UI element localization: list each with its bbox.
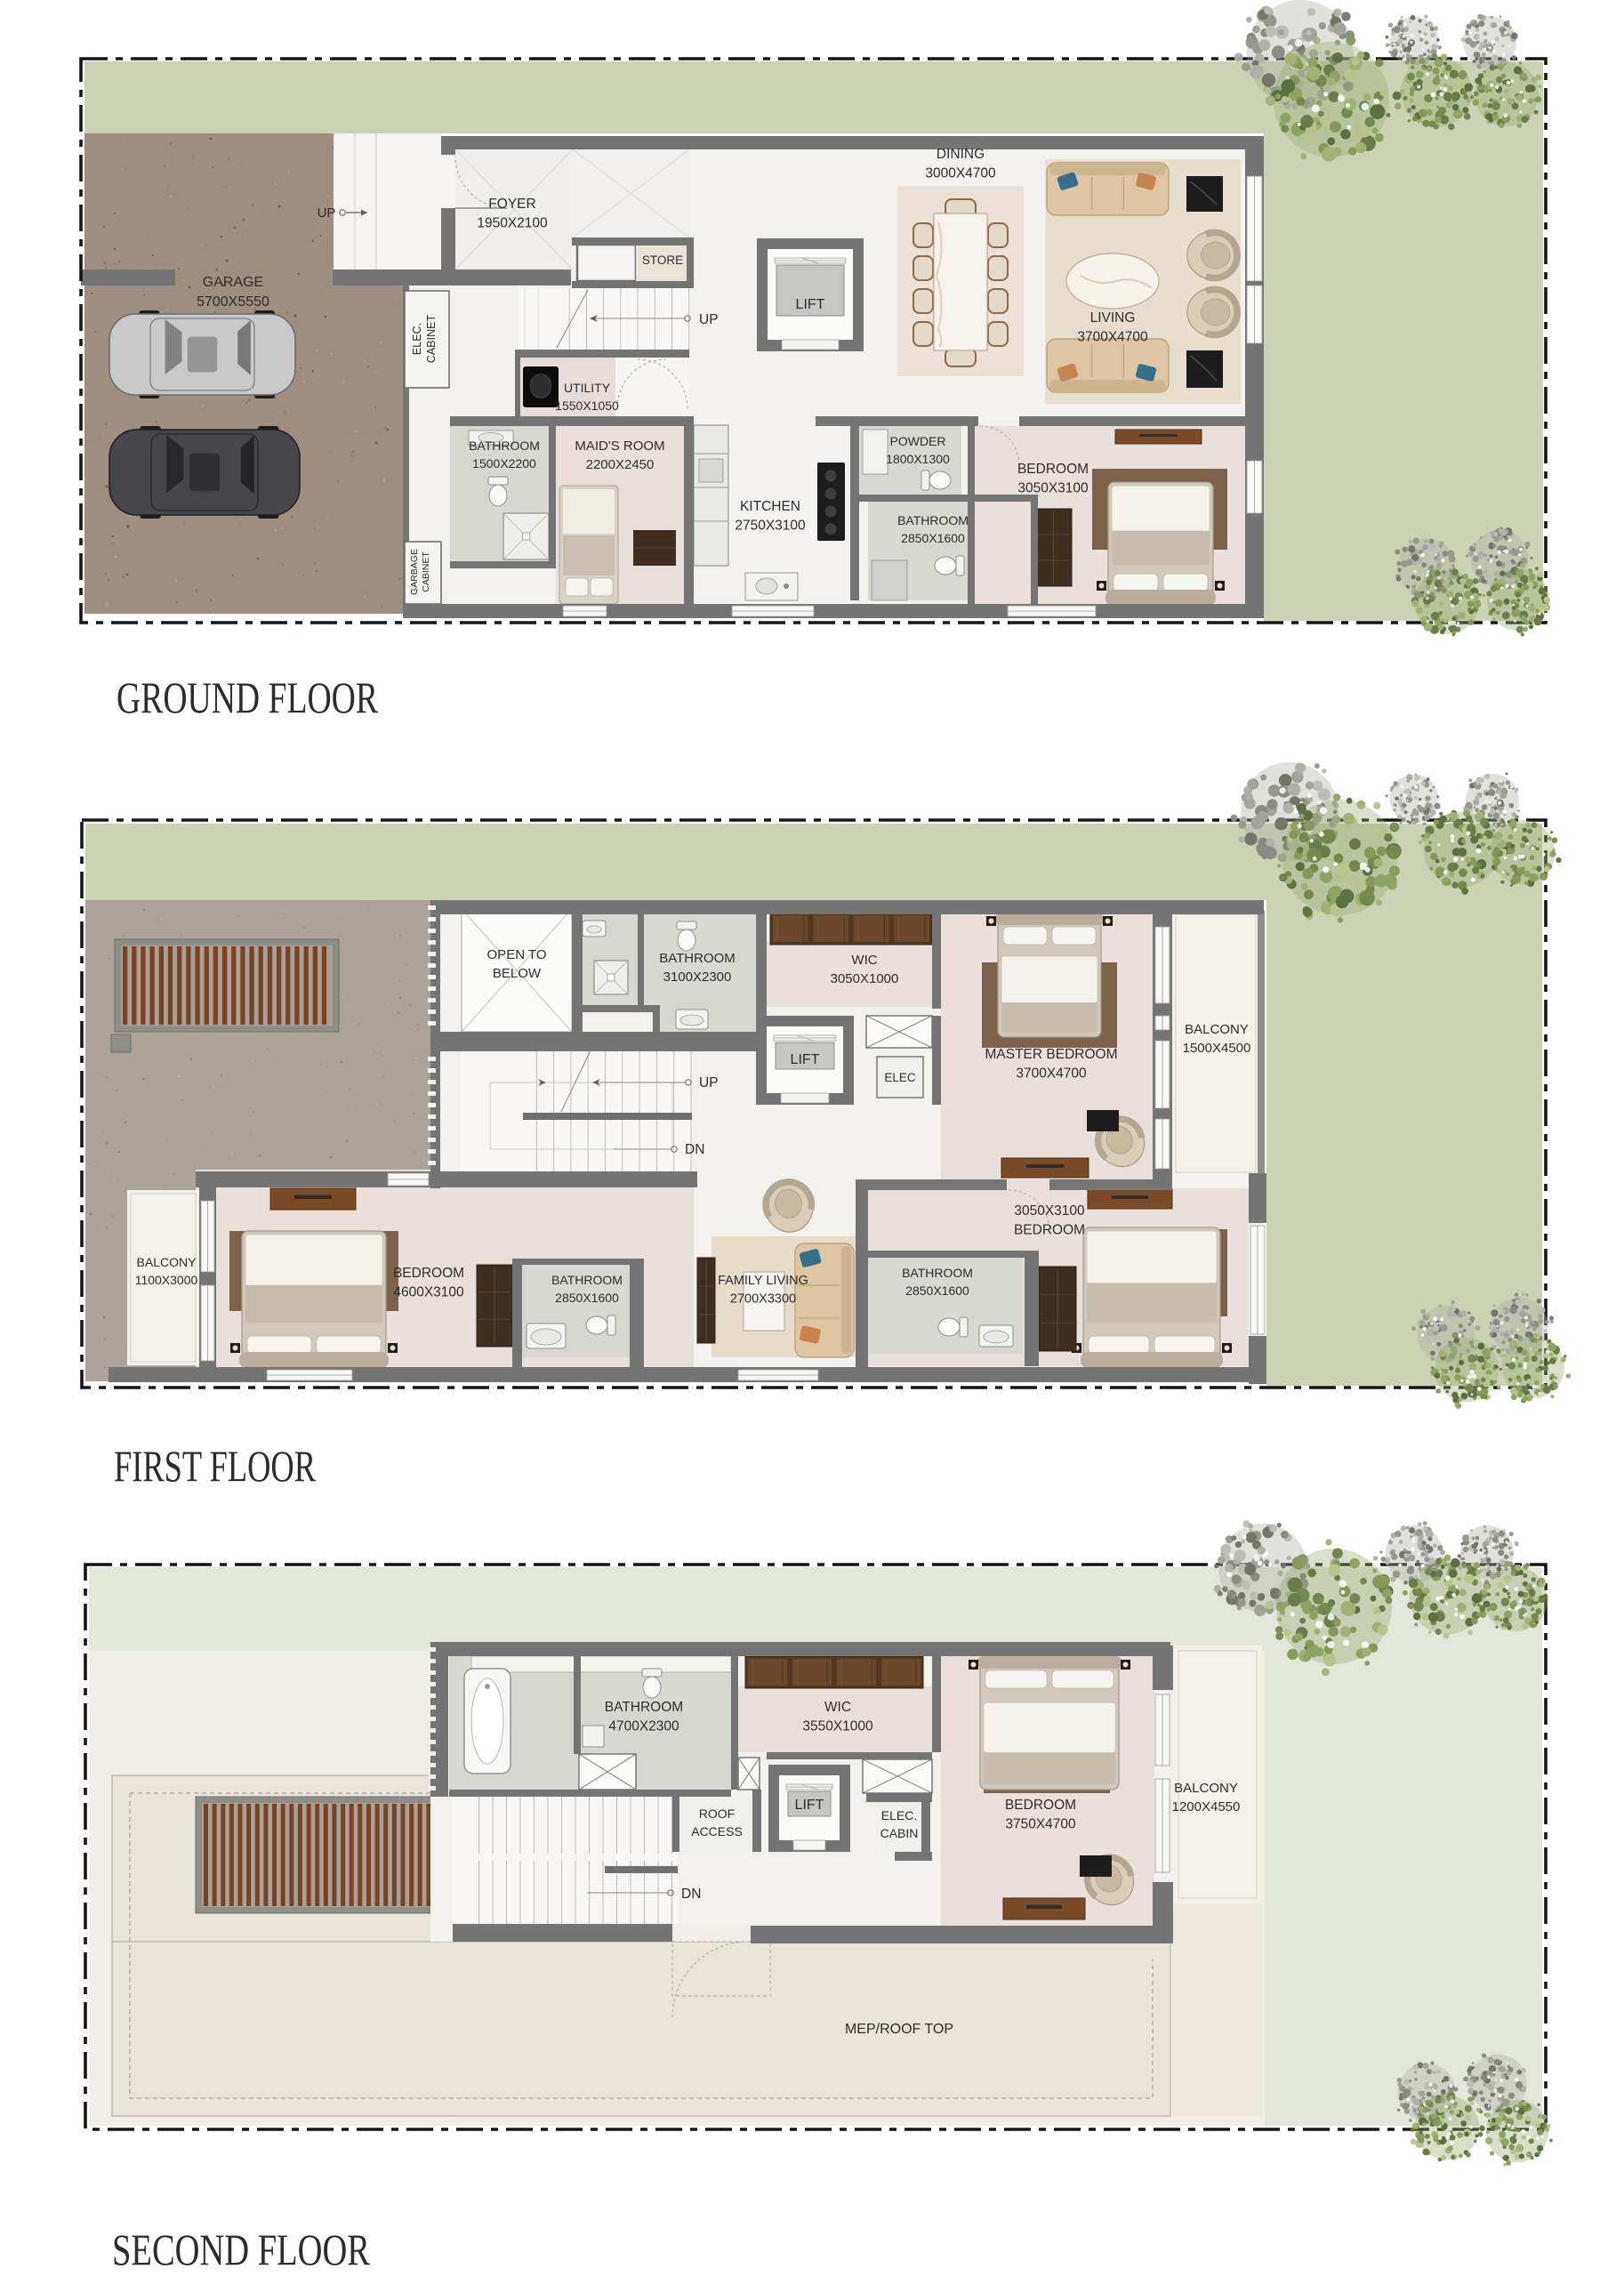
svg-text:LIFT: LIFT xyxy=(795,1798,824,1813)
svg-text:LIVING: LIVING xyxy=(1090,310,1136,326)
svg-text:DINING: DINING xyxy=(937,147,985,162)
svg-text:3050X1000: 3050X1000 xyxy=(831,971,899,986)
svg-text:1200X4550: 1200X4550 xyxy=(1172,1799,1241,1814)
svg-text:4700X2300: 4700X2300 xyxy=(608,1719,679,1734)
svg-text:2850X1600: 2850X1600 xyxy=(555,1291,619,1305)
svg-text:BATHROOM: BATHROOM xyxy=(659,951,736,966)
svg-text:DN: DN xyxy=(681,1887,701,1902)
svg-text:UTILITY: UTILITY xyxy=(564,381,611,395)
svg-text:3550X1000: 3550X1000 xyxy=(802,1719,873,1734)
svg-text:BALCONY: BALCONY xyxy=(1185,1022,1249,1037)
svg-text:DN: DN xyxy=(685,1142,704,1157)
svg-text:2750X3100: 2750X3100 xyxy=(735,519,806,534)
svg-text:BEDROOM: BEDROOM xyxy=(1017,462,1089,477)
svg-text:GARAGE: GARAGE xyxy=(203,275,263,290)
svg-text:OPEN TO: OPEN TO xyxy=(487,947,547,962)
svg-text:SECOND FLOOR: SECOND FLOOR xyxy=(112,2225,370,2274)
svg-text:ELEC.: ELEC. xyxy=(881,1808,917,1822)
svg-text:2200X2450: 2200X2450 xyxy=(586,457,655,472)
svg-text:CABIN: CABIN xyxy=(880,1826,919,1840)
svg-text:5700X5550: 5700X5550 xyxy=(197,294,269,310)
svg-text:FIRST FLOOR: FIRST FLOOR xyxy=(114,1441,316,1491)
svg-text:3700X4700: 3700X4700 xyxy=(1016,1066,1087,1082)
svg-text:1100X3000: 1100X3000 xyxy=(135,1273,198,1287)
svg-text:1550X1050: 1550X1050 xyxy=(555,398,619,413)
svg-text:GROUND FLOOR: GROUND FLOOR xyxy=(117,672,378,722)
svg-text:KITCHEN: KITCHEN xyxy=(740,499,800,514)
svg-text:4600X3100: 4600X3100 xyxy=(393,1285,464,1300)
svg-text:UP: UP xyxy=(699,312,719,327)
svg-text:FAMILY LIVING: FAMILY LIVING xyxy=(718,1274,808,1288)
svg-text:BATHROOM: BATHROOM xyxy=(605,1700,683,1715)
svg-text:3050X3100: 3050X3100 xyxy=(1017,481,1089,496)
svg-text:3050X3100: 3050X3100 xyxy=(1014,1203,1085,1219)
svg-text:GARBAGE: GARBAGE xyxy=(409,549,420,595)
svg-text:MAID'S ROOM: MAID'S ROOM xyxy=(575,439,664,454)
svg-text:1800X1300: 1800X1300 xyxy=(886,452,950,466)
svg-text:MEP/ROOF TOP: MEP/ROOF TOP xyxy=(845,2022,953,2037)
svg-text:STORE: STORE xyxy=(642,253,683,267)
svg-text:2850X1600: 2850X1600 xyxy=(905,1283,969,1298)
svg-text:ROOF: ROOF xyxy=(699,1806,735,1821)
svg-text:LIFT: LIFT xyxy=(796,297,825,312)
svg-text:POWDER: POWDER xyxy=(890,434,946,448)
svg-text:UP: UP xyxy=(699,1075,719,1090)
svg-text:3750X4700: 3750X4700 xyxy=(1005,1817,1076,1832)
svg-text:1500X2200: 1500X2200 xyxy=(472,456,536,471)
svg-text:3700X4700: 3700X4700 xyxy=(1077,330,1148,345)
svg-text:ACCESS: ACCESS xyxy=(691,1824,743,1838)
svg-text:FOYER: FOYER xyxy=(488,197,535,212)
svg-text:BALCONY: BALCONY xyxy=(137,1255,197,1269)
svg-text:BEDROOM: BEDROOM xyxy=(1005,1798,1076,1813)
svg-text:BATHROOM: BATHROOM xyxy=(897,513,969,527)
svg-text:BEDROOM: BEDROOM xyxy=(1014,1223,1085,1238)
svg-text:ELEC: ELEC xyxy=(884,1071,916,1084)
svg-text:2700X3300: 2700X3300 xyxy=(730,1292,796,1307)
svg-text:WIC: WIC xyxy=(851,953,877,968)
svg-text:2850X1600: 2850X1600 xyxy=(901,531,965,545)
svg-text:3100X2300: 3100X2300 xyxy=(663,970,732,985)
svg-text:MASTER BEDROOM: MASTER BEDROOM xyxy=(985,1047,1118,1062)
svg-text:BEDROOM: BEDROOM xyxy=(393,1266,464,1281)
svg-text:3000X4700: 3000X4700 xyxy=(925,166,996,181)
svg-text:CABINET: CABINET xyxy=(421,551,431,592)
svg-text:BATHROOM: BATHROOM xyxy=(551,1273,623,1287)
svg-text:LIFT: LIFT xyxy=(791,1052,820,1067)
svg-text:BALCONY: BALCONY xyxy=(1174,1781,1238,1796)
svg-text:UP: UP xyxy=(318,205,336,221)
svg-text:WIC: WIC xyxy=(824,1700,851,1715)
svg-text:BATHROOM: BATHROOM xyxy=(902,1266,973,1280)
svg-text:BELOW: BELOW xyxy=(493,966,542,981)
svg-text:ELEC.: ELEC. xyxy=(411,323,423,355)
svg-text:BATHROOM: BATHROOM xyxy=(469,439,540,453)
svg-text:1950X2100: 1950X2100 xyxy=(477,216,548,231)
svg-text:1500X4500: 1500X4500 xyxy=(1183,1041,1251,1056)
svg-text:CABINET: CABINET xyxy=(425,315,438,364)
